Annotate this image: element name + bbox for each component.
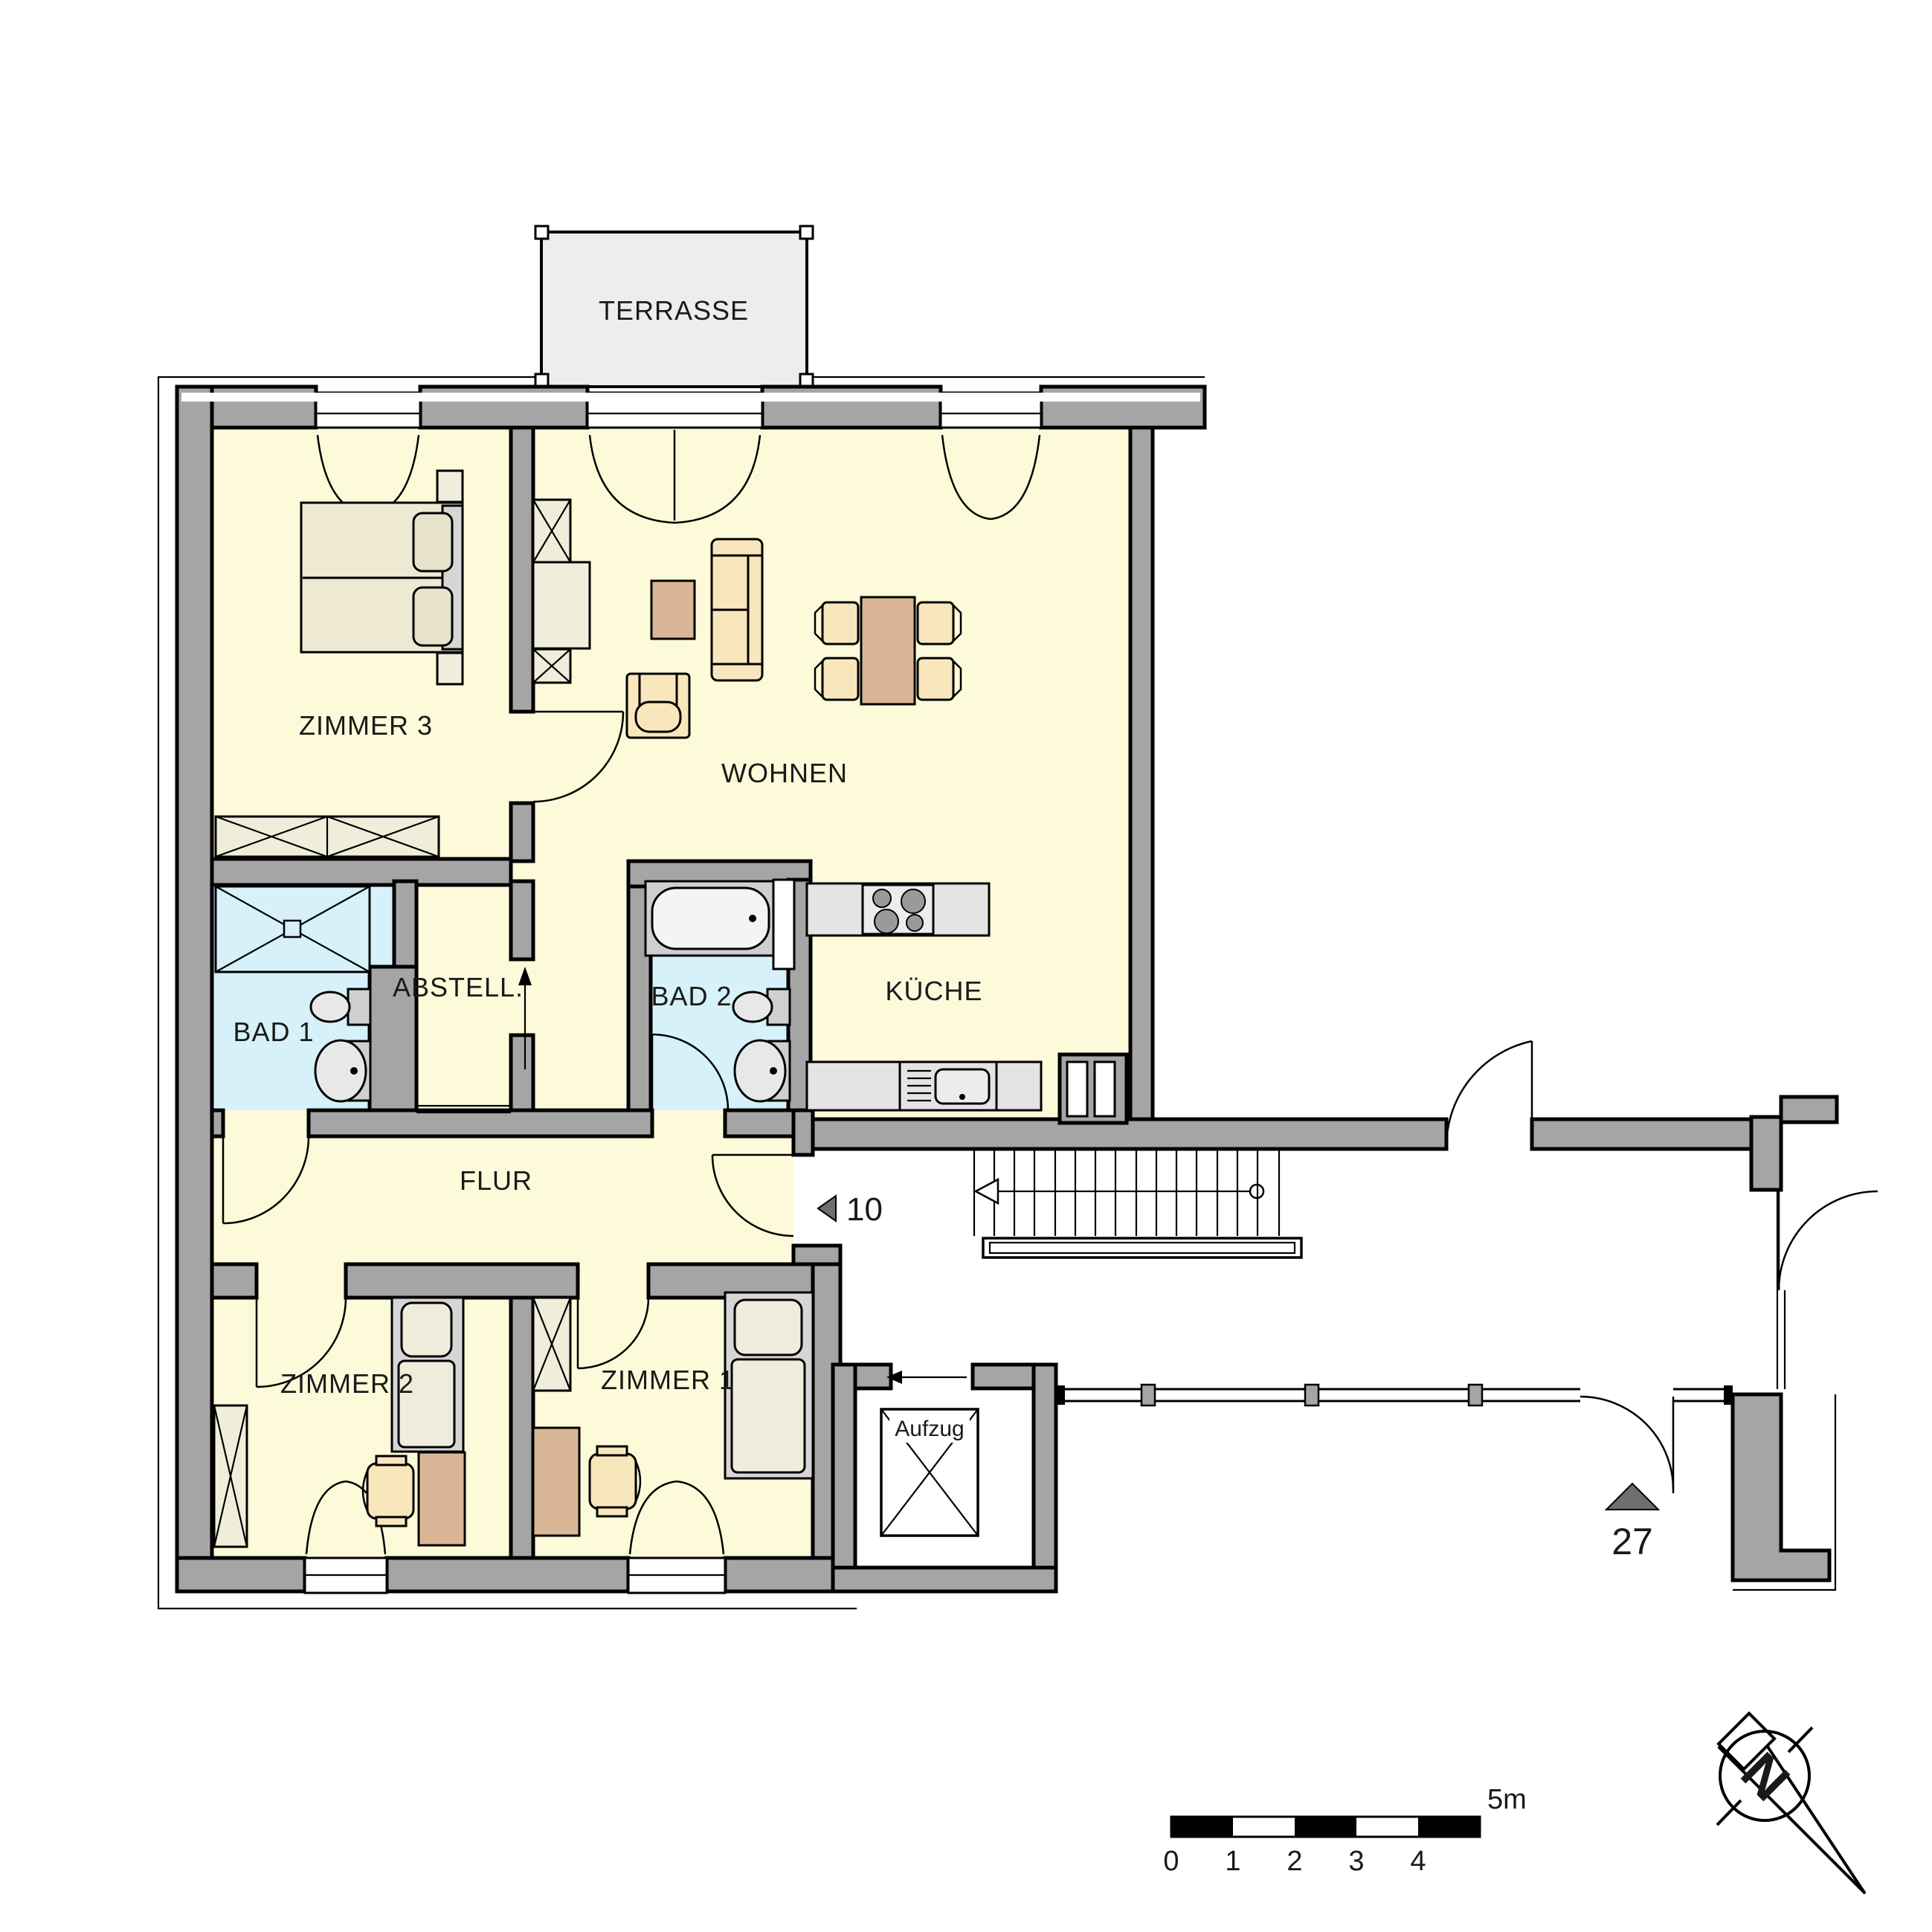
neighbor-unit-number: 27 [1611, 1521, 1653, 1562]
terrace: TERRASSE [535, 226, 813, 387]
stove-counter [807, 883, 989, 936]
bad2-label: BAD 2 [651, 981, 732, 1011]
scale-bar: 0 1 2 3 4 5m [1163, 1784, 1526, 1877]
stairs [974, 1149, 1301, 1258]
entrance-marker: 10 [818, 1191, 883, 1228]
desk-chair [363, 1456, 413, 1526]
scale-tick-4: 4 [1410, 1846, 1426, 1877]
zimmer2-label: ZIMMER 2 [280, 1368, 414, 1399]
desk [419, 1452, 465, 1545]
zimmer3-label: ZIMMER 3 [299, 710, 433, 741]
toilet [733, 989, 790, 1025]
double-bed [301, 503, 463, 652]
abstell-label: ABSTELL. [393, 972, 524, 1002]
scale-tick-2: 2 [1287, 1846, 1302, 1877]
scale-tick-0: 0 [1163, 1846, 1179, 1877]
wohnen-label: WOHNEN [721, 758, 848, 788]
sink [315, 1040, 370, 1101]
bad1-label: BAD 1 [233, 1017, 314, 1047]
flur-label: FLUR [460, 1165, 532, 1196]
wardrobe [533, 1298, 570, 1391]
elevator-car: Aufzug [881, 1409, 978, 1536]
stairwell: Aufzug [833, 1149, 1835, 1591]
north-arrow-icon: N [1717, 1713, 1864, 1893]
desk-chair [590, 1446, 640, 1516]
scale-tick-1: 1 [1225, 1846, 1240, 1877]
scale-tick-3: 3 [1348, 1846, 1364, 1877]
floor-plan-drawing: TERRASSE [0, 0, 1932, 1932]
shower [216, 886, 370, 972]
armchair [627, 674, 689, 738]
kueche-label: KÜCHE [885, 976, 982, 1006]
floor-plan-page: TERRASSE [0, 0, 1932, 1932]
wardrobe [214, 1405, 247, 1547]
terrasse-label: TERRASSE [599, 295, 749, 326]
nightstand [437, 653, 463, 684]
scale-end-label: 5m [1487, 1784, 1527, 1815]
sink [735, 1040, 790, 1101]
zimmer1-label: ZIMMER 1 [601, 1365, 735, 1395]
elevator: Aufzug [833, 1365, 1056, 1591]
neighbor-entrance-marker: 27 [1606, 1484, 1658, 1562]
sideboard [216, 817, 439, 857]
toilet [311, 989, 370, 1025]
bathtub [645, 881, 776, 956]
nightstand [437, 471, 463, 502]
aufzug-label: Aufzug [895, 1417, 964, 1441]
bed [725, 1292, 813, 1478]
sofa [712, 539, 762, 680]
sink-counter [807, 1062, 1041, 1110]
coffee-table [651, 581, 695, 639]
unit-number: 10 [846, 1191, 883, 1228]
desk [533, 1428, 579, 1536]
